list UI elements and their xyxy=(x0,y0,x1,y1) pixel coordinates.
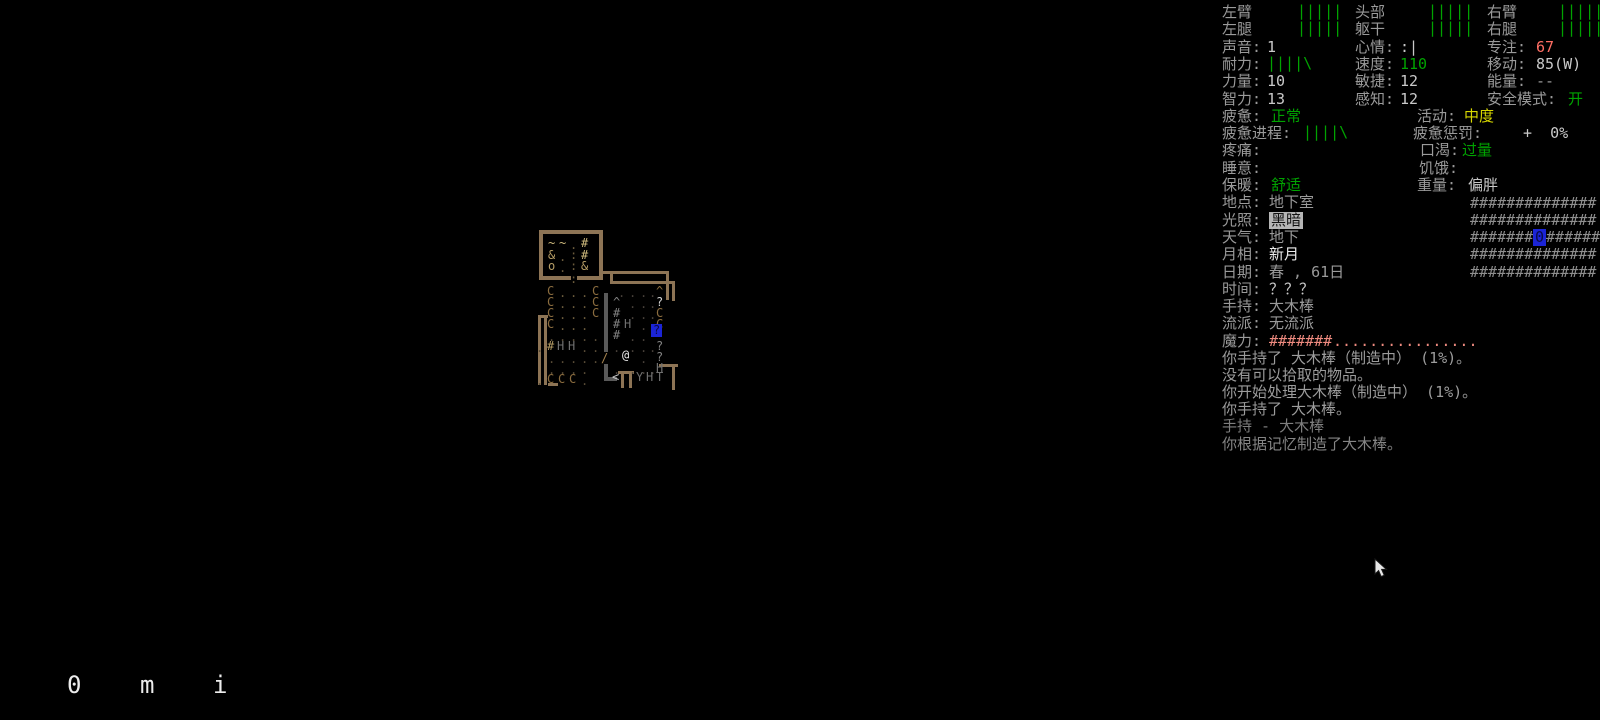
mana-label: 魔力: xyxy=(1222,333,1261,350)
map-wall xyxy=(577,276,603,280)
bodypart-right-arm-label: 右臂 xyxy=(1487,4,1517,21)
morale-label: 心情: xyxy=(1355,39,1394,56)
date-value: 春 , 61日 xyxy=(1269,264,1344,281)
dexterity-label: 敏捷: xyxy=(1355,73,1394,90)
fatigue-progress-bar: ||||\ xyxy=(1303,124,1348,141)
bodypart-torso-label: 躯干 xyxy=(1355,21,1385,38)
mana-bar-empty: ................ xyxy=(1333,333,1478,350)
bodypart-left-leg-bar: ||||| xyxy=(1297,20,1342,37)
message-6: 你根据记忆制造了大木棒。 xyxy=(1222,436,1402,453)
map-glyph-floor: . xyxy=(592,353,599,366)
weight-value: 偏胖 xyxy=(1468,177,1498,194)
bodypart-left-arm-bar: ||||| xyxy=(1297,3,1342,20)
hotkey-i[interactable]: i xyxy=(213,672,227,699)
safe-mode-value: 开 xyxy=(1568,91,1583,108)
focus-value: 67 xyxy=(1536,39,1554,56)
map-glyph-open-door: / xyxy=(601,352,608,365)
morale-value: :| xyxy=(1400,39,1418,56)
map-glyph-furniture: T xyxy=(656,371,663,384)
power-label: 能量: xyxy=(1487,73,1526,90)
thirst-label: 口渴: xyxy=(1420,142,1459,159)
map-glyph-furniture: Y xyxy=(636,371,643,384)
fatigue-label: 疲惫: xyxy=(1222,108,1261,125)
message-4: 你手持了 大木棒。 xyxy=(1222,401,1351,418)
perception-value: 12 xyxy=(1400,91,1418,108)
map-glyph-water: ~ xyxy=(559,237,566,250)
warmth-label: 保暖: xyxy=(1222,177,1261,194)
map-wall xyxy=(604,364,608,378)
map-glyph-furniture: H xyxy=(646,371,653,384)
minimap-player-marker: 0 xyxy=(1533,229,1546,246)
perception-label: 感知: xyxy=(1355,91,1394,108)
dexterity-value: 12 xyxy=(1400,73,1418,90)
weather-value: 地下 xyxy=(1269,229,1299,246)
activity-label: 活动: xyxy=(1417,108,1456,125)
minimap-row-1: ############## xyxy=(1470,195,1596,212)
light-value: 黑暗 xyxy=(1269,212,1303,229)
map-glyph-floor: . xyxy=(536,375,543,388)
map-wall xyxy=(621,372,624,388)
focus-label: 专注: xyxy=(1487,39,1526,56)
bodypart-head-bar: ||||| xyxy=(1428,3,1473,20)
time-value: ？？？ xyxy=(1269,281,1314,298)
power-value: -- xyxy=(1536,73,1554,90)
fatigue-penalty-value: + 0% xyxy=(1523,125,1568,142)
minimap-row-5: ############## xyxy=(1470,264,1596,281)
minimap-row-3-right: ###### xyxy=(1546,229,1600,246)
map-wall xyxy=(539,230,543,280)
map-glyph-item: C xyxy=(569,373,576,386)
map-wall xyxy=(604,293,608,352)
map-wall xyxy=(539,276,571,280)
move-label: 移动: xyxy=(1487,56,1526,73)
sound-label: 声音: xyxy=(1222,39,1261,56)
map-wall xyxy=(610,271,613,284)
place-label: 地点: xyxy=(1222,194,1261,211)
fatigue-value: 正常 xyxy=(1271,108,1301,125)
map-wall xyxy=(666,271,669,300)
time-label: 时间: xyxy=(1222,281,1261,298)
weather-label: 天气: xyxy=(1222,229,1261,246)
activity-value: 中度 xyxy=(1464,108,1494,125)
minimap-row-4: ############## xyxy=(1470,246,1596,263)
intelligence-value: 13 xyxy=(1267,91,1285,108)
bodypart-left-leg-label: 左腿 xyxy=(1222,21,1252,38)
light-label: 光照: xyxy=(1222,212,1261,229)
map-glyph-item: o xyxy=(548,260,555,273)
map-wall xyxy=(610,281,675,284)
fatigue-penalty-label: 疲惫惩罚: xyxy=(1413,125,1482,142)
map-glyph-floor: . xyxy=(559,262,566,275)
fatigue-progress-label: 疲惫进程: xyxy=(1222,125,1291,142)
message-1: 你手持了 大木棒（制造中） (1%)。 xyxy=(1222,350,1471,367)
map-glyph-item: C xyxy=(547,373,554,386)
map-wall xyxy=(539,230,603,234)
stamina-label: 耐力: xyxy=(1222,56,1261,73)
message-5: 手持 - 大木棒 xyxy=(1222,418,1324,435)
hotkey-m[interactable]: m xyxy=(140,672,154,699)
map-wall xyxy=(672,281,675,301)
hotkey-0[interactable]: 0 xyxy=(67,672,81,699)
style-value: 无流派 xyxy=(1269,315,1314,332)
map-glyph-floor: . xyxy=(613,342,620,355)
selected-tile-highlight[interactable]: ? xyxy=(651,324,662,337)
map-glyph-item: C xyxy=(592,307,599,320)
map-glyph-door: : xyxy=(570,273,577,286)
player-symbol: @ xyxy=(622,349,629,362)
mouse-cursor-icon xyxy=(1374,558,1388,578)
intelligence-label: 智力: xyxy=(1222,91,1261,108)
wielded-label: 手持: xyxy=(1222,298,1261,315)
place-value: 地下室 xyxy=(1269,194,1314,211)
message-2: 没有可以拾取的物品。 xyxy=(1222,367,1372,384)
map-glyph-floor: . xyxy=(536,342,543,355)
style-label: 流派: xyxy=(1222,315,1261,332)
map-glyph-floor: . xyxy=(629,342,636,355)
bodypart-torso-bar: ||||| xyxy=(1428,20,1473,37)
moon-label: 月相: xyxy=(1222,246,1261,263)
map-glyph-item: C xyxy=(558,373,565,386)
message-3: 你开始处理大木棒（制造中） (1%)。 xyxy=(1222,384,1477,401)
bodypart-head-label: 头部 xyxy=(1355,4,1385,21)
hunger-label: 饥饿: xyxy=(1419,160,1458,177)
strength-label: 力量: xyxy=(1222,73,1261,90)
thirst-value: 过量 xyxy=(1462,142,1492,159)
moon-value: 新月 xyxy=(1269,246,1299,263)
map-wall xyxy=(672,364,675,390)
bodypart-right-leg-label: 右腿 xyxy=(1487,21,1517,38)
map-glyph-item: & xyxy=(581,260,588,273)
wielded-value: 大木棒 xyxy=(1269,298,1314,315)
date-label: 日期: xyxy=(1222,264,1261,281)
mana-bar-filled: ####### xyxy=(1269,333,1332,350)
drowsiness-label: 睡意: xyxy=(1222,160,1261,177)
bodypart-left-arm-label: 左臂 xyxy=(1222,4,1252,21)
safe-mode-label: 安全模式: xyxy=(1487,91,1556,108)
pain-label: 疼痛: xyxy=(1222,142,1261,159)
stairs-up-symbol: < xyxy=(612,371,619,384)
move-value: 85(W) xyxy=(1536,56,1581,73)
map-glyph-floor: . xyxy=(581,375,588,388)
bodypart-right-leg-bar: ||||| xyxy=(1558,20,1600,37)
warmth-value: 舒适 xyxy=(1271,177,1301,194)
speed-value: 110 xyxy=(1400,56,1427,73)
game-screen: ~~.#&.:#o.:&:C...CC...CC...CC.........#H… xyxy=(0,0,1600,720)
weight-label: 重量: xyxy=(1417,177,1456,194)
bodypart-right-arm-bar: ||||| xyxy=(1558,3,1600,20)
minimap-row-2: ############## xyxy=(1470,212,1596,229)
strength-value: 10 xyxy=(1267,73,1285,90)
speed-label: 速度: xyxy=(1355,56,1394,73)
stamina-bar: ||||\ xyxy=(1267,55,1312,72)
minimap-row-3-left: ####### xyxy=(1470,229,1533,246)
